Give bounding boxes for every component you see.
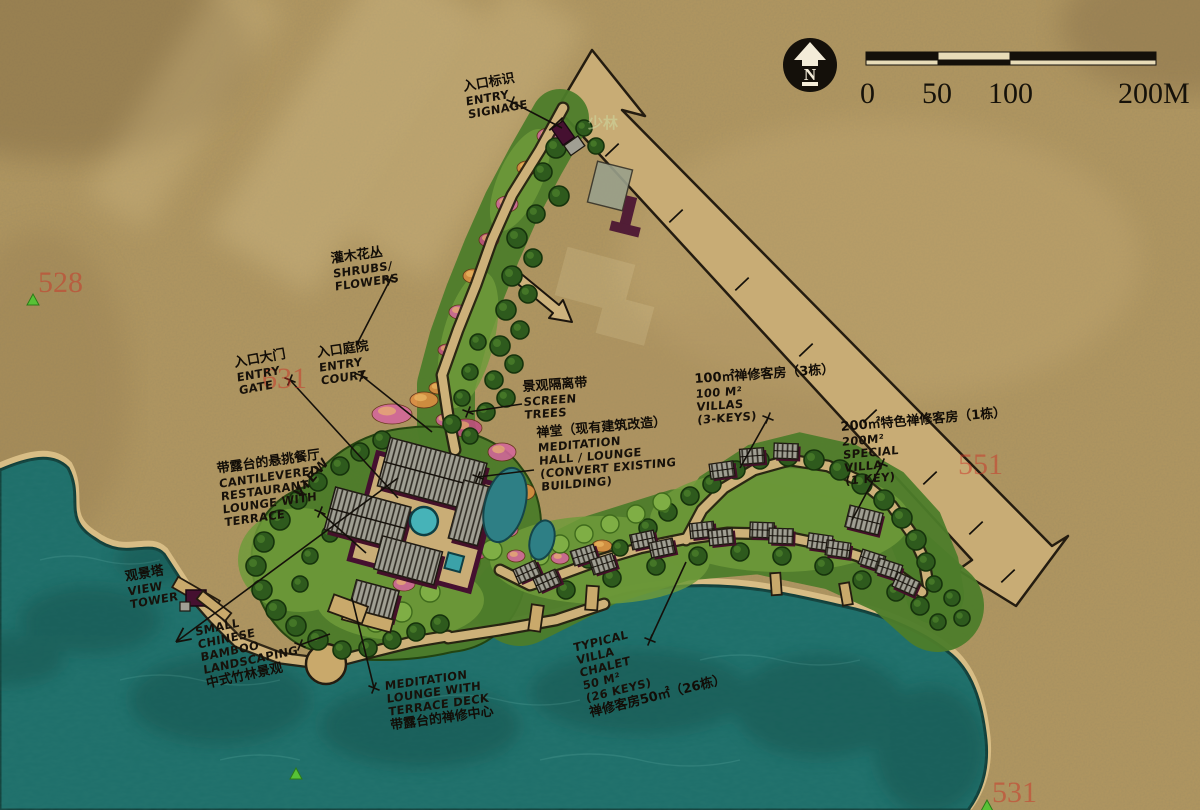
site-plan-canvas: N 0 50 100 200M 528631551531少林 入口标识ENTRY… [0, 0, 1200, 810]
site-plan-drawing: N 0 50 100 200M 528631551531少林 [0, 0, 1200, 810]
north-arrow-icon: N [783, 38, 837, 92]
ghost-watermark-text: 少林 [587, 114, 619, 132]
scale-100: 100 [988, 77, 1033, 110]
north-label: N [804, 65, 817, 84]
scale-0: 0 [860, 77, 875, 110]
scan-red-number: 528 [38, 266, 83, 299]
scan-red-number: 631 [262, 362, 307, 395]
scale-50: 50 [922, 77, 952, 110]
scan-red-number: 551 [958, 448, 1003, 481]
scale-200m: 200M [1118, 77, 1190, 110]
square-pool [444, 552, 464, 572]
scan-red-number: 531 [992, 776, 1037, 809]
